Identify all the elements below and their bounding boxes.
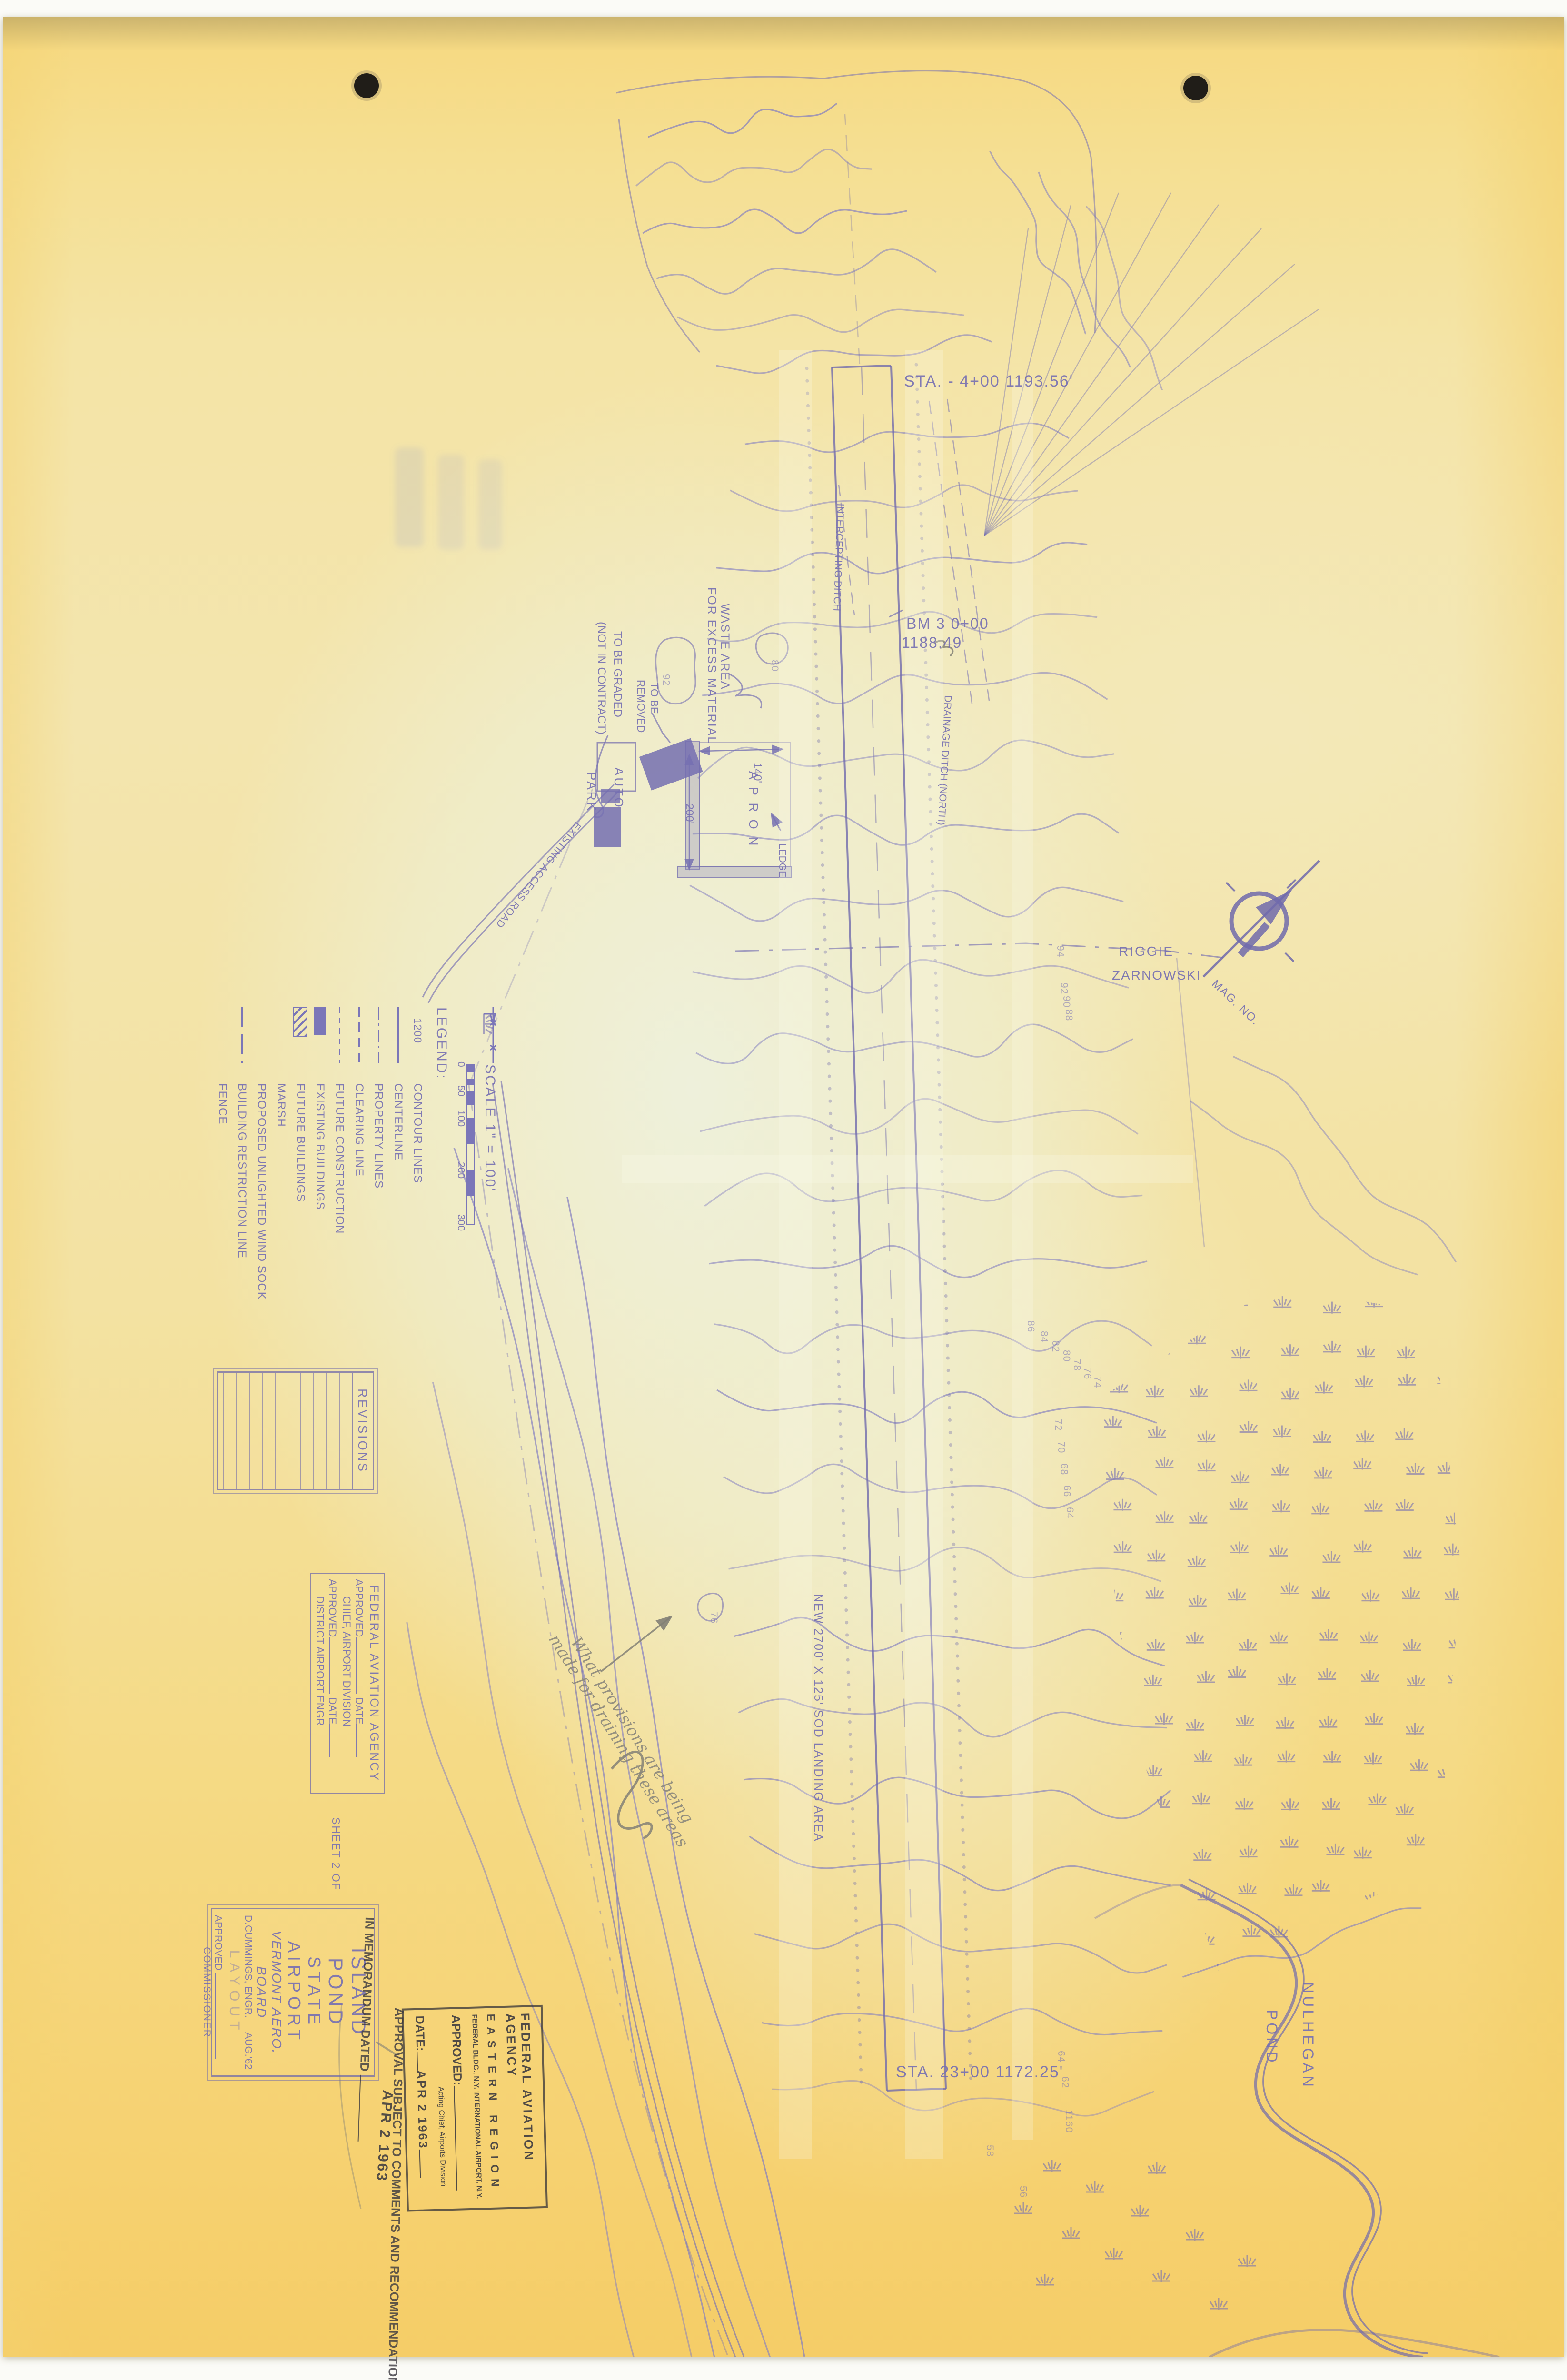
contour-number: 88 [1063, 1009, 1074, 1021]
forest-symbol [1155, 1457, 1173, 1468]
contour-line [754, 1924, 1167, 1973]
forest-symbol [1194, 1298, 1212, 1309]
legend-label: FUTURE BUILDINGS [294, 1083, 307, 1202]
forest-symbol [1186, 1719, 1204, 1731]
forest-symbol [1354, 1847, 1372, 1859]
removed-note-line2: REMOVED [635, 680, 646, 733]
forest-symbol [1228, 1589, 1246, 1601]
forest-symbol [1114, 1541, 1132, 1553]
forest-symbol [1072, 1380, 1091, 1392]
ditch-lines [839, 399, 989, 704]
forest-symbol [1440, 1333, 1458, 1345]
scale-tick: 200 [455, 1162, 466, 1179]
forest-symbol [1156, 1928, 1174, 1940]
forest-symbol [1438, 1766, 1456, 1778]
forest-symbol [1155, 1974, 1173, 1986]
contour-number: 1160 [1063, 2110, 1074, 2133]
forest-symbol [1368, 1793, 1386, 1805]
forest-symbol [1155, 1713, 1173, 1725]
forest-symbol [1152, 1343, 1170, 1355]
survey-fan-lines [984, 193, 1319, 535]
future-building-symbol [294, 1007, 308, 1083]
contour-number: 64 [1064, 1507, 1075, 1519]
forest-symbol [1270, 1632, 1288, 1644]
scale-ticks: 0 50 100 200 300 [454, 1064, 466, 1226]
paper-sheet: STA. - 4+00 1193.56' BM 3 0+00 1188.49 S… [3, 17, 1564, 2357]
forest-symbol [1322, 1551, 1340, 1563]
sheet-number-label: SHEET 2 OF [330, 1817, 342, 1891]
property-owner-riggie: RIGGIE [1119, 944, 1174, 958]
forest-symbol [1323, 1751, 1341, 1763]
waste-area-note-line1: WASTE AREA [719, 604, 731, 690]
contour-number: 92 [661, 674, 671, 686]
marsh-symbol [1086, 2181, 1104, 2193]
contour-line [636, 149, 872, 186]
forest-symbol [1280, 1582, 1299, 1594]
contour-line [734, 1617, 1164, 1666]
forest-symbol [1236, 1257, 1254, 1269]
forest-symbol [1110, 1833, 1128, 1845]
aero-board-name: VERMONT AERO. BOARD [254, 1915, 284, 2070]
scale-bar-segment [467, 1085, 474, 1091]
legend-label: FENCE [216, 1083, 229, 1124]
forest-symbol [1281, 1798, 1299, 1810]
forest-symbol [1445, 1923, 1463, 1935]
forest-symbol [1318, 1668, 1336, 1680]
forest-symbol [1063, 1722, 1081, 1734]
scale-tick: 50 [455, 1085, 466, 1096]
forest-symbol [1276, 1717, 1294, 1729]
forest-symbol [1403, 1970, 1421, 1982]
contour-line [1190, 1101, 1418, 1275]
forest-symbol [1109, 1885, 1127, 1897]
marsh-symbol [1152, 2270, 1170, 2282]
station-label-top: STA. - 4+00 1193.56' [904, 373, 1073, 390]
forest-symbol [1190, 1385, 1208, 1397]
forest-symbol [1406, 1463, 1424, 1475]
forest-symbol [1110, 1920, 1128, 1932]
marsh-symbol [1186, 2229, 1204, 2241]
marsh-symbol [1148, 2162, 1166, 2174]
forest-symbol [1113, 1499, 1131, 1511]
station-label-bottom: STA. 23+00 1172.25' [896, 2064, 1063, 2081]
benchmark-label: BM 3 0+00 [906, 616, 989, 632]
scale-bar-segment [467, 1196, 474, 1222]
legend-label: PROPOSED UNLIGHTED WIND SOCK [255, 1083, 268, 1300]
contour-line [1039, 172, 1131, 367]
forest-symbol [1273, 1296, 1291, 1308]
forest-symbol [1239, 1379, 1257, 1391]
scale-tick: 0 [455, 1061, 466, 1067]
legend-item-marsh: MARSH [271, 1007, 291, 1302]
forest-symbol [1319, 1629, 1338, 1641]
contour-number: 78 [1071, 1359, 1082, 1371]
scale-bar-segment [467, 1144, 474, 1170]
contour-line [700, 1099, 1138, 1134]
contour-line [749, 1836, 1170, 1891]
contour-line [696, 1024, 1133, 1063]
legend-label: BUILDING RESTRICTION LINE [236, 1083, 249, 1259]
forest-symbol [1448, 1672, 1466, 1684]
forest-symbol [1438, 1462, 1456, 1474]
forest-symbol [1365, 1713, 1383, 1725]
forest-symbol [1234, 1754, 1252, 1766]
forest-symbol [1407, 1249, 1425, 1261]
forest-symbol [1398, 1293, 1417, 1305]
contour-number: 80 [769, 660, 780, 672]
ledge-label: LEDGE [777, 843, 787, 877]
forest-symbol [1271, 1263, 1289, 1275]
legend-item-building-restriction: BUILDING RESTRICTION LINE [232, 1007, 252, 1302]
forest-symbol [1144, 1675, 1162, 1686]
forest-symbol [1072, 1591, 1090, 1603]
faa-approval-block: FEDERAL AVIATION AGENCY APPROVED DATE CH… [310, 1573, 385, 1794]
forest-symbol [1403, 1547, 1421, 1559]
north-arrow-compass [1203, 861, 1319, 977]
marsh-symbol [1036, 2274, 1054, 2286]
legend-item-fence: FENCE [213, 1007, 232, 1302]
legend-item-future-construction: FUTURE CONSTRUCTION [330, 1007, 349, 1302]
legend-label: CLEARING LINE [353, 1083, 366, 1177]
forest-symbol [1318, 1967, 1336, 1979]
apron-label: APRON [747, 771, 760, 853]
scale-tick: 300 [455, 1214, 466, 1231]
forest-symbol [1407, 1834, 1425, 1846]
scale-bar-segment [467, 1072, 474, 1079]
contour-line [1086, 206, 1162, 390]
existing-building [594, 807, 621, 847]
marsh-symbol [1131, 2205, 1149, 2217]
contour-line [709, 1246, 1147, 1277]
forest-symbol [1147, 1550, 1165, 1562]
forest-symbol [1397, 1347, 1415, 1359]
forest-symbol [1365, 1296, 1383, 1308]
scale-bar-segment [467, 1091, 474, 1105]
forest-symbol [1193, 1849, 1211, 1861]
engineer-and-date: D.CUMMINGS, ENGR.AUG.'62 [242, 1915, 254, 2070]
forest-symbol [1239, 1639, 1257, 1651]
revisions-grid [218, 1373, 352, 1489]
legend-label: CONTOUR LINES [411, 1083, 425, 1183]
forest-symbol [1448, 1795, 1467, 1807]
forest-symbol [1439, 1303, 1457, 1315]
legend-item-wind-sock: PROPOSED UNLIGHTED WIND SOCK [252, 1007, 271, 1302]
forest-symbol [1323, 1302, 1341, 1314]
forest-symbol [1146, 1587, 1164, 1599]
forest-symbol [1105, 1590, 1123, 1602]
contour-line [762, 2008, 1163, 2034]
faa-rubber-stamp: FEDERAL AVIATION AGENCY EASTERN REGION F… [402, 2005, 538, 2196]
forest-symbol [1357, 1346, 1375, 1358]
survey-line [984, 264, 1295, 535]
contour-line [717, 1390, 1157, 1423]
marsh-symbol [1043, 2160, 1061, 2172]
forest-symbol [1068, 1417, 1086, 1428]
forest-symbol [1360, 1632, 1378, 1644]
forest-symbol [1230, 1498, 1248, 1510]
pond-name-line2: POND [1263, 2010, 1279, 2065]
title-approved-line: APPROVED [212, 1915, 226, 2070]
legend-item-property: PROPERTY LINES [369, 1007, 388, 1302]
faded-smudges [395, 447, 502, 550]
marsh-symbol [1238, 2255, 1256, 2267]
stream-and-shore [1095, 1879, 1499, 2357]
scale-tick: 100 [455, 1110, 466, 1127]
contour-number: 56 [1018, 2186, 1028, 2198]
forest-symbol [1102, 1793, 1121, 1805]
engineer-name: D.CUMMINGS, ENGR. [242, 1915, 254, 2018]
commissioner-line: COMMISSIONER [201, 1915, 212, 2070]
stamp-address: FEDERAL BLDG., N.Y. INTERNATIONAL AIRPOR… [470, 2014, 483, 2202]
contour-line [702, 673, 1107, 703]
stamp-date-line: DATE:APR 2 1963 [412, 2015, 433, 2204]
forest-symbol [1115, 1304, 1133, 1316]
forest-symbol [1197, 1431, 1215, 1443]
forest-symbol [1240, 1421, 1258, 1433]
contour-number: 74 [1092, 1376, 1102, 1388]
contour-line [1233, 1057, 1456, 1262]
forest-symbol [1449, 1637, 1467, 1649]
auto-park-label-line1: AUTO [612, 767, 625, 809]
forest-symbol [1448, 1418, 1466, 1430]
marsh-symbols [1014, 2160, 1256, 2310]
scale-bar-segment [467, 1118, 474, 1144]
scale-bar-segment [467, 1065, 474, 1072]
forest-symbol [1319, 1716, 1337, 1728]
runway-dimension-label: NEW 2700' X 125' SOD LANDING AREA [812, 1594, 824, 1842]
forest-symbol [1188, 1556, 1206, 1567]
forest-symbol [1364, 1500, 1382, 1512]
contour-number: 92 [1059, 982, 1069, 994]
contour-number: 70 [1056, 1441, 1066, 1453]
legend-label: MARSH [275, 1083, 288, 1127]
faa-chief-title: CHIEF, AIRPORT DIVISION [340, 1579, 353, 1788]
contour-number: 72 [1053, 1419, 1063, 1431]
legend-item-clearing: CLEARING LINE [349, 1007, 369, 1302]
contour-number: 94 [1055, 945, 1065, 957]
legend-item-existing-buildings: EXISTING BUILDINGS [310, 1007, 330, 1302]
contour-symbol: —1200— [412, 1007, 424, 1083]
building-restriction-symbol [241, 1007, 243, 1083]
forest-symbol [1445, 1588, 1463, 1600]
forest-symbol [1398, 1374, 1416, 1386]
faa-block-title: FEDERAL AVIATION AGENCY [367, 1579, 381, 1788]
forest-symbol [1281, 1388, 1299, 1400]
existing-building-symbol [314, 1007, 327, 1083]
removed-note-line1: TO BE [649, 683, 660, 714]
graded-note-line2: (NOT IN CONTRACT) [595, 622, 607, 734]
forest-symbol [1311, 1503, 1329, 1515]
forest-symbol [1061, 1844, 1079, 1855]
forest-symbol [1445, 1513, 1463, 1525]
forest-symbol [1444, 1544, 1462, 1556]
forest-symbol [1396, 1804, 1414, 1815]
forest-symbol [1197, 1671, 1215, 1683]
contour-number: 62 [1060, 2076, 1070, 2088]
forest-symbol [1104, 1416, 1122, 1428]
pond-name-line1: NULHEGAN [1299, 1982, 1316, 2090]
centerline-symbol [397, 1007, 399, 1083]
forest-symbol [1353, 1458, 1371, 1470]
forest-symbol [1365, 1892, 1383, 1904]
forest-symbol [1440, 1888, 1458, 1900]
marsh-symbol [1062, 2227, 1080, 2239]
contour-number: 66 [1061, 1485, 1072, 1497]
legend-item-future-buildings: FUTURE BUILDINGS [291, 1007, 310, 1302]
forest-symbol [1452, 1716, 1470, 1728]
forest-symbol [1239, 1883, 1257, 1894]
forest-symbol [1315, 1248, 1333, 1259]
forest-symbol [1068, 1883, 1086, 1895]
forest-symbol [1198, 1889, 1216, 1901]
stamp-agency: FEDERAL AVIATION AGENCY [503, 2013, 537, 2201]
forest-symbol [1312, 1880, 1330, 1892]
stamp-date-value: APR 2 1963 [414, 2070, 429, 2150]
contour-line [772, 2081, 1154, 2115]
forest-symbol [1071, 1792, 1089, 1804]
property-line-symbol [378, 1007, 379, 1083]
scale-block: SCALE 1" = 100' 0 50 100 200 300 [454, 1064, 498, 1302]
runway [807, 114, 971, 2092]
contour-line [729, 1547, 1161, 1581]
legend-item-contour: —1200—CONTOUR LINES [408, 1007, 427, 1302]
contour-line [745, 423, 1069, 452]
forest-symbol [1189, 1512, 1207, 1524]
revisions-header: REVISIONS [352, 1373, 373, 1489]
legend-label: PROPERTY LINES [372, 1083, 386, 1189]
clearing-line-symbol [358, 1007, 360, 1083]
survey-line [984, 193, 1119, 535]
contour-number: 90 [1061, 996, 1071, 1008]
faa-engineer-title: DISTRICT AIRPORT ENGR [314, 1579, 326, 1788]
forest-symbol [1313, 1431, 1331, 1443]
graded-note-line1: TO BE GRADED [612, 631, 624, 717]
contour-number: 82 [1050, 1340, 1061, 1352]
forest-symbol [1067, 1925, 1085, 1937]
forest-symbol [1398, 1929, 1417, 1941]
forest-symbol [1402, 1886, 1420, 1898]
contour-number: 86 [1025, 1320, 1036, 1332]
drawing-type: LAYOUT [226, 1915, 242, 2070]
scale-bar [466, 1064, 475, 1225]
property-lines [469, 783, 1223, 2357]
marsh-symbol [1105, 2248, 1123, 2260]
forest-symbol [1156, 1511, 1174, 1523]
scale-bar-segment [467, 1079, 474, 1085]
forest-symbol [1314, 1467, 1332, 1479]
contour-line [714, 1321, 1152, 1353]
dimension-200-label: 200' [684, 803, 695, 824]
forest-symbol [1361, 1590, 1379, 1602]
legend-panel: SCALE 1" = 100' 0 50 100 200 300 LEGEND:… [174, 1007, 498, 1302]
scale-bar-segment [467, 1170, 474, 1196]
forest-symbol [1278, 1673, 1296, 1685]
forest-symbol [1357, 1967, 1375, 1979]
contour-number: 76 [1082, 1368, 1092, 1379]
contour-line [648, 103, 837, 137]
benchmark-elevation: 1188.49 [902, 635, 962, 651]
forest-symbol [1186, 1632, 1204, 1644]
future-construction-symbol [339, 1007, 340, 1083]
forest-symbol [1192, 1793, 1210, 1805]
forest-symbol [1281, 1344, 1299, 1356]
scanned-airport-layout-sheet: { "sheet": { "scale": {"title": "SCALE 1… [0, 0, 1567, 2374]
survey-line [984, 205, 1219, 535]
forest-symbol [1228, 1965, 1246, 1977]
forest-symbol [1150, 1848, 1169, 1860]
marsh-symbol [1014, 2202, 1032, 2214]
contour-line [744, 1777, 1170, 1818]
faa-approved-line-2: APPROVED DATE [326, 1579, 340, 1788]
forest-symbol [1228, 1666, 1246, 1678]
forest-symbol [1407, 1675, 1425, 1686]
contour-number: 76 [708, 1612, 719, 1624]
forest-symbol [1271, 1464, 1289, 1476]
forest-symbol [1436, 1973, 1454, 1985]
forest-symbol [1355, 1376, 1373, 1388]
contour-line [724, 1464, 1157, 1508]
forest-symbol [1231, 1347, 1250, 1359]
forest-symbol [1360, 1927, 1378, 1939]
forest-symbol [1406, 1723, 1424, 1735]
marsh-symbol [1210, 2298, 1228, 2310]
contour-line [677, 309, 964, 332]
forest-symbol [1146, 1386, 1164, 1398]
forest-symbol [1194, 1750, 1212, 1762]
forest-symbol [1113, 1764, 1131, 1776]
forest-symbol [1198, 1460, 1216, 1472]
contour-number: 64 [1056, 2051, 1066, 2063]
forest-symbol [1198, 1254, 1216, 1266]
forest-symbol [1272, 1500, 1290, 1512]
forest-symbol [1326, 1844, 1344, 1855]
legend-label: FUTURE CONSTRUCTION [333, 1083, 347, 1234]
pencil-marks [339, 641, 953, 2209]
forest-symbol [1188, 1332, 1206, 1344]
forest-symbol [1147, 1639, 1165, 1651]
forest-symbol [1312, 1587, 1330, 1599]
forest-symbol [1361, 1670, 1379, 1682]
forest-symbol [1235, 1798, 1253, 1810]
forest-symbol [1437, 1373, 1455, 1385]
forest-symbol [1230, 1294, 1248, 1306]
forest-symbol [1062, 1674, 1080, 1686]
forest-symbol [1104, 1628, 1122, 1640]
forest-symbol [1356, 1430, 1374, 1442]
forest-symbol [1148, 1426, 1166, 1438]
forest-symbol [1071, 1555, 1090, 1567]
forest-symbol [1403, 1639, 1421, 1651]
forest-symbol [1280, 1836, 1299, 1848]
faa-approved-line-1: APPROVED DATE [353, 1579, 367, 1788]
forest-symbol [1144, 1765, 1162, 1776]
dimension-140-label: 140' [752, 763, 764, 783]
forest-symbol [1236, 1715, 1254, 1726]
legend-title: LEGEND: [433, 1007, 449, 1302]
property-owner-zarnowski: ZARNOWSKI [1112, 968, 1201, 982]
forest-symbol [1189, 1595, 1207, 1607]
forest-symbol [1322, 1798, 1340, 1810]
waste-area-note-line2: FOR EXCESS MATERIAL [705, 587, 718, 744]
auto-park-label-line2: PARK [585, 772, 598, 813]
forest-symbol [1105, 1672, 1123, 1684]
forest-symbol [1156, 1295, 1174, 1307]
contour-line [690, 885, 1123, 921]
forest-symbol [1110, 1381, 1128, 1393]
forest-symbol [1315, 1382, 1333, 1394]
forest-symbol [1231, 1471, 1249, 1483]
forest-symbol [1060, 1755, 1078, 1767]
